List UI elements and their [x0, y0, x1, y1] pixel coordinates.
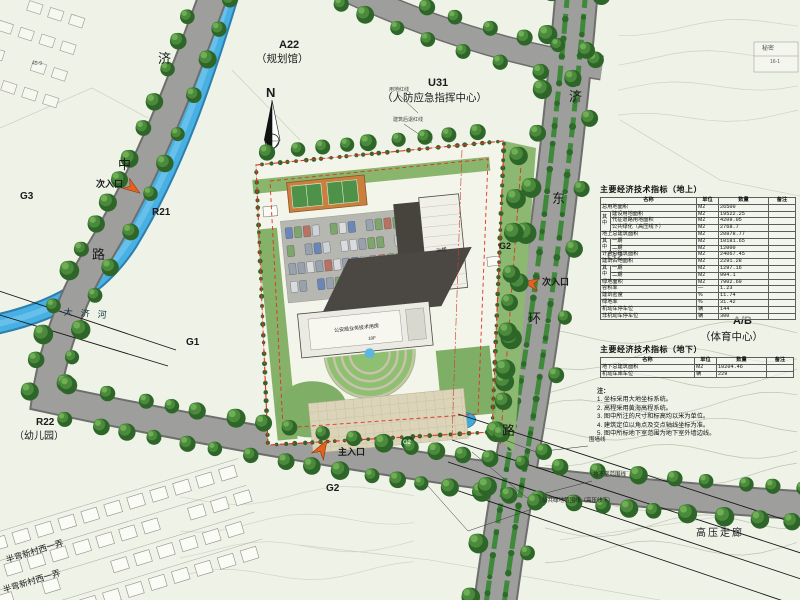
indicator-table: 名称单位数量备注地下总建筑面积M210204.46机动车库车位辆229 [600, 357, 794, 378]
basement-line-label: 地下室范围线 [593, 473, 626, 479]
table-above-ground: 主要经济技术指标（地上） 名称单位数量备注总用地面积M226500其中建设用地面… [600, 184, 796, 320]
public-green-line-label: 公共绿地范围线（高压线下） [542, 499, 614, 505]
road-right-char-1: 济 [569, 90, 582, 103]
indicator-table: 名称单位数量备注总用地面积M226500其中建设用地面积M219522.25代征… [600, 197, 796, 320]
table-below-title: 主要经济技术指标（地下） [600, 344, 794, 355]
road-right-char-3: 环 [528, 312, 541, 325]
sheet-corner-box [754, 42, 798, 72]
table-row: 机动车库车位辆229 [601, 371, 794, 378]
zone-r22-code: R22 [36, 418, 54, 428]
main-entrance-label: 主入口 [338, 448, 365, 457]
zone-u31-name: （人防应急指挥中心） [382, 93, 487, 104]
zone-g2-strip: G2 [403, 440, 411, 446]
notes-block: 注： 1. 坐标采用大地坐标系统。2. 高程采用黄海高程系统。3. 图中所注的尺… [597, 388, 800, 438]
setback-label: 建筑后退红线 [393, 118, 423, 123]
zone-ab-name: （体育中心） [700, 332, 763, 343]
corner-note-secret: 秘密 [762, 46, 774, 52]
road-left-char-1: 济 [158, 52, 171, 65]
zone-a22-name: （规划馆） [256, 54, 309, 65]
zone-g1: G1 [186, 338, 199, 348]
secondary-entrance-west-label: 次入口 [96, 180, 123, 189]
gatehouse-west [263, 206, 278, 217]
table-row: 非机动车停车位辆300 [601, 313, 796, 320]
site-plan-drawing: A22 （规划馆） N U31 （人防应急指挥中心） 用地红线 建筑后退红线 济… [0, 0, 800, 600]
table-above-title: 主要经济技术指标（地上） [600, 184, 796, 195]
note-item: 2. 高程采用黄海高程系统。 [597, 405, 800, 413]
column-header: 备注 [767, 358, 794, 365]
hv-corridor-label: 高压走廊 [696, 529, 744, 539]
zone-g2-road: G2 [326, 484, 339, 494]
road-left-char-2: 中 [118, 158, 131, 171]
zone-r22-name: （幼儿园） [14, 432, 64, 442]
corner-note-tl: 45-9 [32, 62, 42, 67]
zone-a22-code: A22 [279, 40, 299, 51]
zone-u31-code: U31 [428, 78, 448, 89]
note-item: 1. 坐标采用大地坐标系统。 [597, 396, 800, 404]
zone-g2-site: G2 [499, 242, 511, 251]
secondary-entrance-east-label: 次入口 [542, 278, 569, 287]
zone-g3: G3 [20, 192, 33, 202]
fence-line-label: 围墙线 [589, 438, 606, 444]
road-left-char-3: 路 [92, 248, 105, 261]
column-header: 备注 [769, 198, 796, 205]
road-right-char-2: 东 [552, 192, 565, 205]
note-item: 3. 图中所注的尺寸和标高均以米为单位。 [597, 413, 800, 421]
red-line-label: 用地红线 [389, 88, 409, 93]
table-below-ground: 主要经济技术指标（地下） 名称单位数量备注地下总建筑面积M210204.46机动… [600, 344, 794, 378]
main-building-floors: 10F [368, 336, 376, 341]
note-item: 5. 图中所标地下室范围为地下室外墙边线。 [597, 430, 800, 438]
project-site [252, 140, 536, 457]
north-label: N [266, 86, 275, 99]
road-right-char-4: 路 [502, 424, 515, 437]
note-item: 4. 建筑定位以角点及交点轴线坐标为准。 [597, 422, 800, 430]
zone-r21: R21 [152, 208, 170, 218]
corner-note-sheet: 16-1 [770, 60, 780, 65]
